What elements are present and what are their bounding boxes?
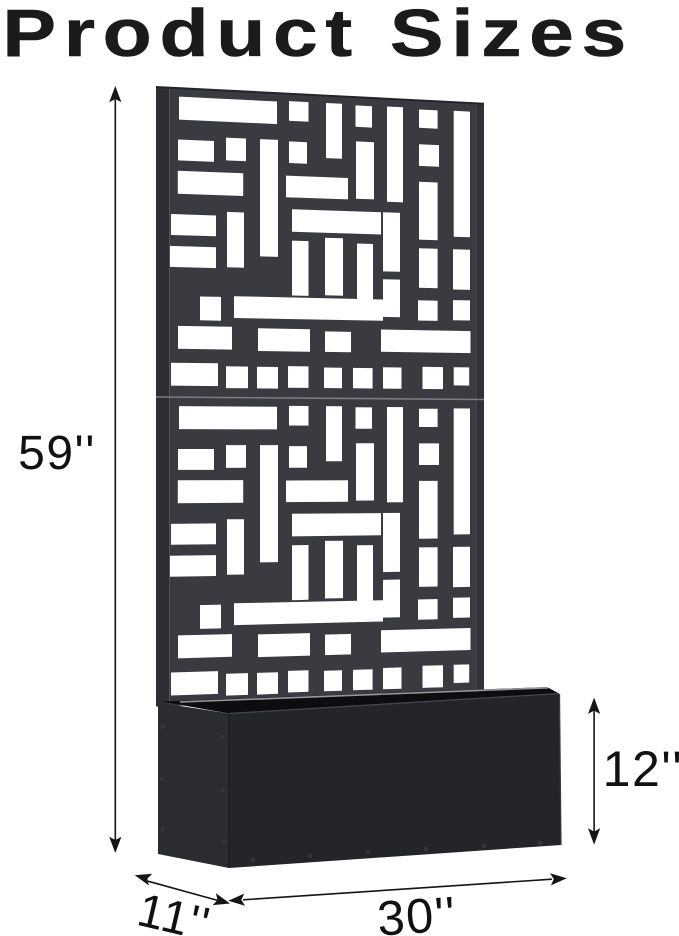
svg-text:59'': 59'' — [18, 427, 96, 480]
svg-text:30'': 30'' — [376, 887, 459, 936]
svg-text:12'': 12'' — [603, 741, 679, 797]
svg-text:Product Sizes: Product Sizes — [2, 0, 633, 70]
